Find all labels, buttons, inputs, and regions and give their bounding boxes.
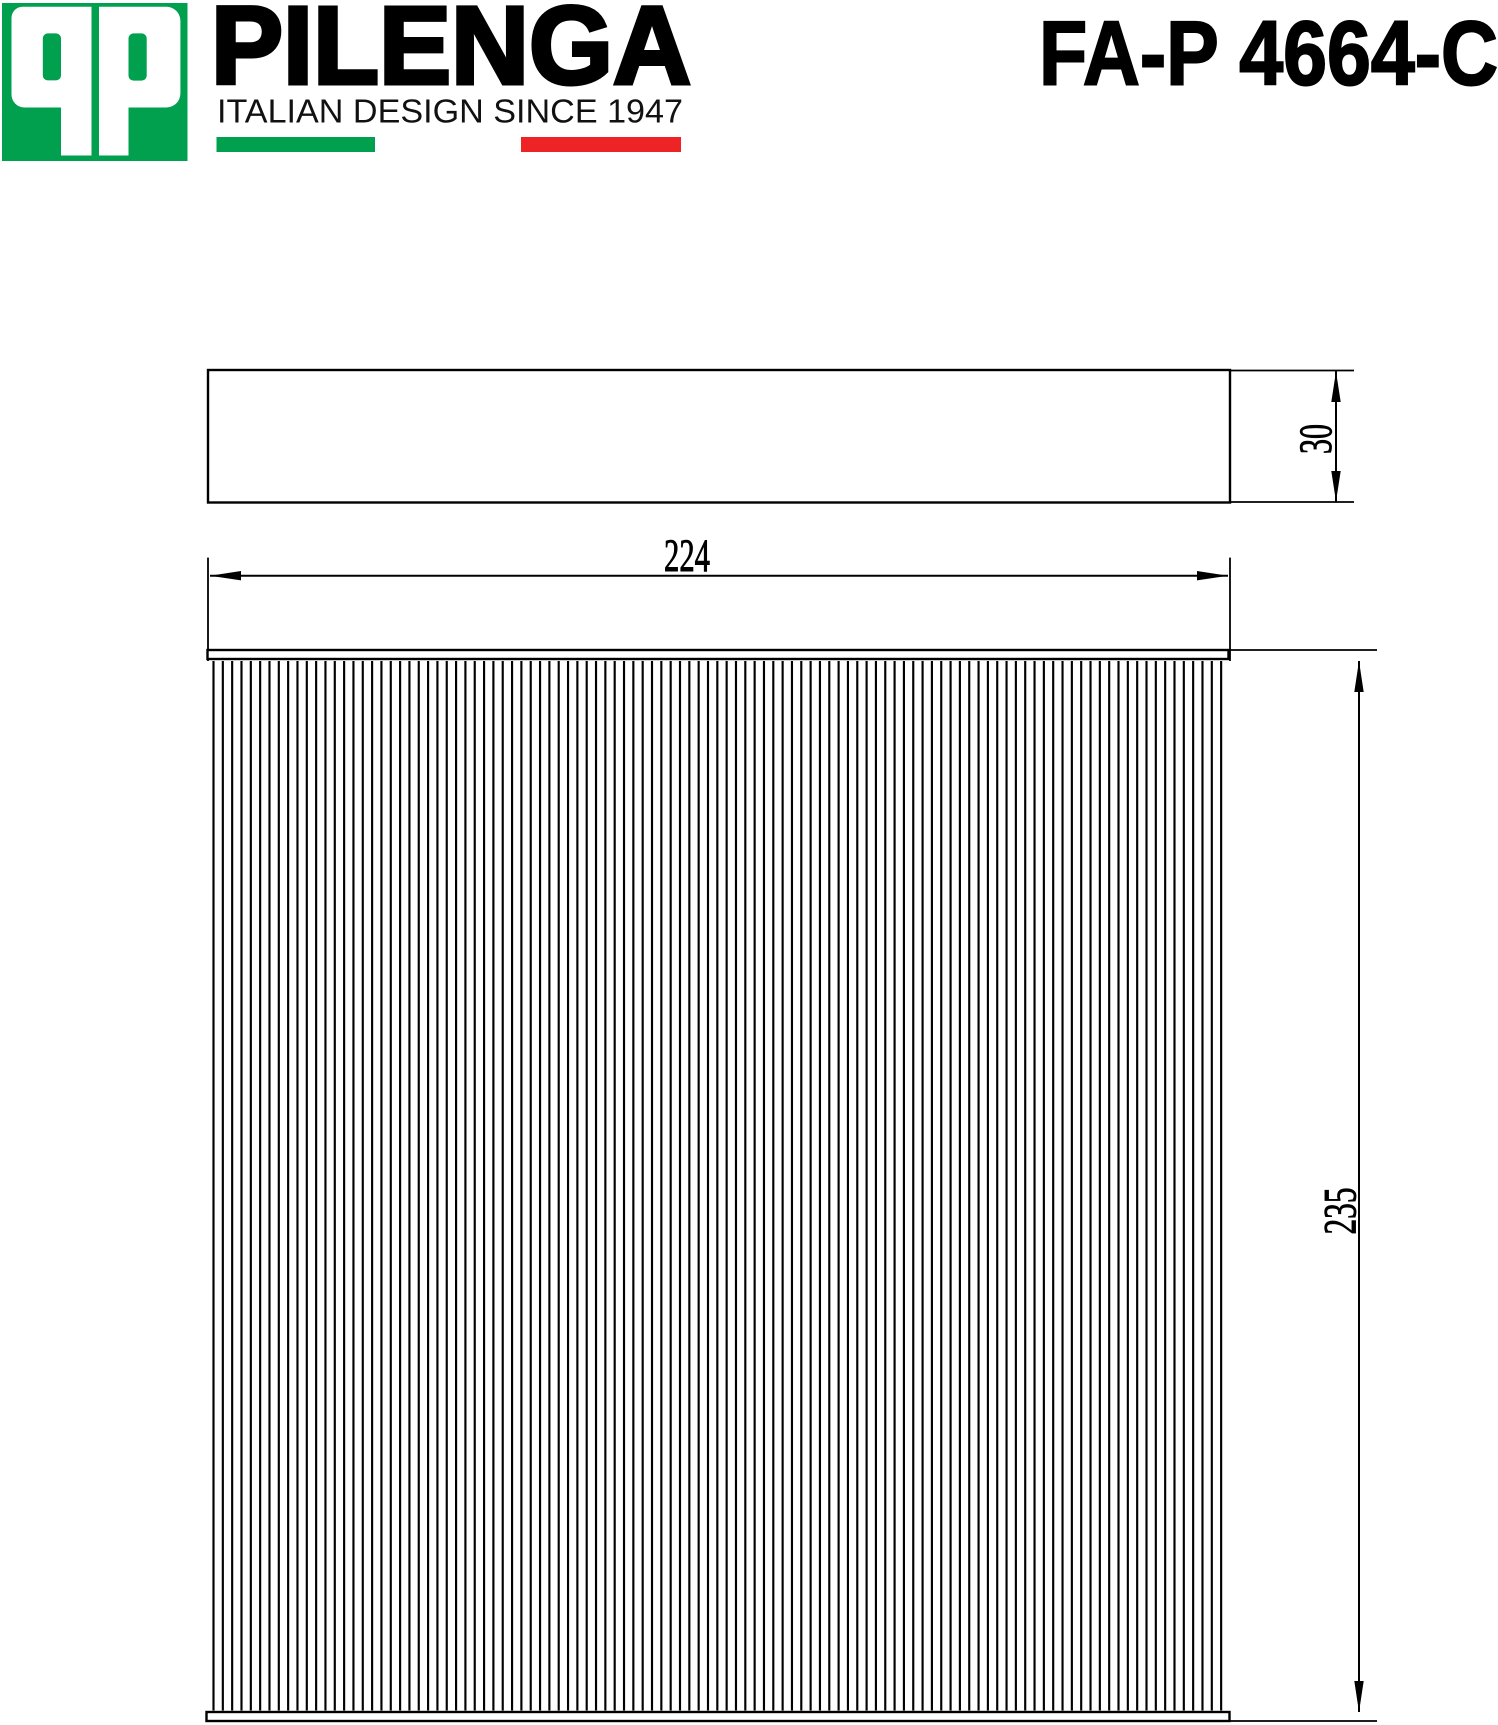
svg-text:30: 30 <box>1290 424 1342 454</box>
svg-text:224: 224 <box>664 530 710 582</box>
svg-text:ITALIAN DESIGN SINCE 1947: ITALIAN DESIGN SINCE 1947 <box>217 93 683 130</box>
svg-text:PILENGA: PILENGA <box>211 0 691 108</box>
svg-text:235: 235 <box>1315 1188 1367 1235</box>
svg-text:FA-P 4664-C: FA-P 4664-C <box>1039 4 1498 105</box>
